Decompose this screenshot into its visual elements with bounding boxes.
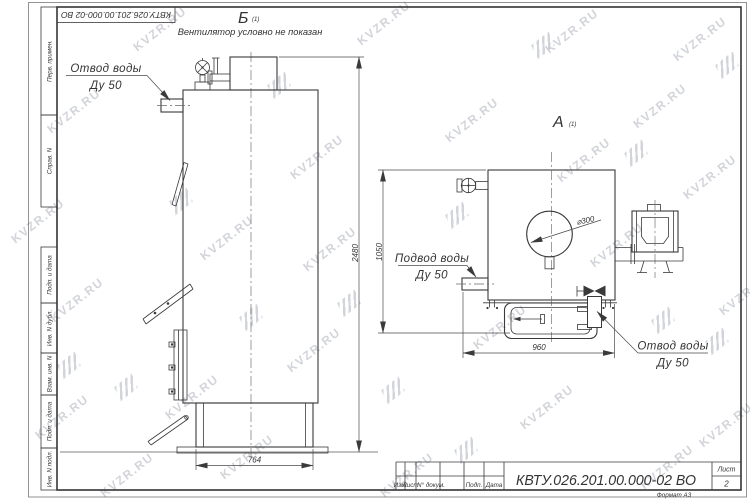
dimension-2480: 2480	[279, 57, 364, 452]
side-field-sprav-n: Справ. N	[47, 147, 54, 174]
view-b-note: Вентилятор условно не показан	[178, 27, 323, 37]
callout-text: Ду 50	[88, 80, 122, 92]
side-field-vzam-inv: Взам. инв. N	[47, 355, 54, 392]
ash-base	[196, 403, 313, 447]
callout-water-inlet-side: Подвод воды Ду 50	[395, 253, 476, 282]
dim-text: 2480	[351, 244, 360, 263]
flue-opening-circle	[527, 211, 573, 257]
title-block: Изм. Лист N° докум. Подп. Дата КВТУ.026.…	[394, 462, 741, 499]
side-field-inv-dubl: Инв. N дубл.	[46, 310, 54, 346]
drawing-frame: Перв. примен. Справ. N Подп. и дата Инв.…	[29, 3, 747, 498]
inverted-docnum-box: КВТУ.026.201.00.000-02 ВО	[57, 7, 175, 23]
callout-water-outlet-side: Отвод воды Ду 50	[597, 312, 709, 370]
technical-drawing: Перв. примен. Справ. N Подп. и дата Инв.…	[0, 0, 750, 500]
sheet-number: 2	[723, 480, 729, 489]
callout-text: Отвод воды	[70, 63, 141, 75]
callout-water-outlet-front: Отвод воды Ду 50	[66, 63, 170, 101]
boiler-body-front	[177, 52, 328, 456]
col-podp: Подп.	[466, 481, 483, 489]
view-b-boiler-front: Б (1) Вентилятор условно не показан	[60, 10, 378, 470]
callout-text: Ду 50	[414, 270, 448, 282]
dim-text: 960	[532, 343, 546, 352]
door-handle	[514, 317, 521, 321]
dim-text: 764	[248, 456, 262, 465]
side-field-perv-primen: Перв. примен.	[47, 40, 54, 82]
water-outlet-pipe-front	[157, 99, 190, 112]
dim-text: 1050	[375, 243, 384, 261]
side-field-podp-data-2: Подп. и дата	[46, 401, 54, 441]
callout-text: Подвод воды	[395, 253, 469, 265]
water-inlet-pipe-side	[456, 278, 494, 290]
drawing-sheet: KVZR.RUKVZR.RUKVZR.RUKVZR.RUKVZR.RUKVZR.…	[0, 0, 750, 500]
side-valve	[457, 178, 488, 192]
view-a-boiler-side: А (1) ⌀300	[375, 114, 709, 370]
hinge-plate	[174, 330, 187, 400]
sheet-label: Лист	[716, 467, 735, 474]
side-field-inv-podl: Инв. N подл.	[46, 451, 54, 488]
col-ndokum: N° докум.	[417, 481, 445, 489]
format-note: Формат А3	[657, 492, 692, 499]
side-field-podp-data-1: Подп. и дата	[46, 255, 54, 295]
flue-fan-assembly	[615, 200, 683, 278]
inverted-doc-number: КВТУ.026.201.00.000-02 ВО	[61, 10, 171, 19]
dimension-1050: 1050	[375, 170, 510, 333]
furnace-door	[505, 303, 598, 339]
col-data: Дата	[485, 482, 503, 489]
view-a-scale: (1)	[569, 122, 576, 128]
callout-text: Ду 50	[655, 358, 689, 370]
title-doc-number: КВТУ.026.201.00.000-02 ВО	[516, 472, 696, 489]
chimney-collar	[230, 57, 277, 90]
side-field-boxes: Перв. примен. Справ. N Подп. и дата Инв.…	[41, 7, 57, 490]
dim-text: ⌀300	[576, 214, 596, 227]
view-a-label: А	[552, 114, 564, 131]
callout-text: Отвод воды	[637, 341, 708, 353]
view-b-label: Б	[238, 10, 248, 27]
vent-pipe-elbow	[208, 58, 230, 84]
view-b-scale: (1)	[252, 17, 259, 23]
